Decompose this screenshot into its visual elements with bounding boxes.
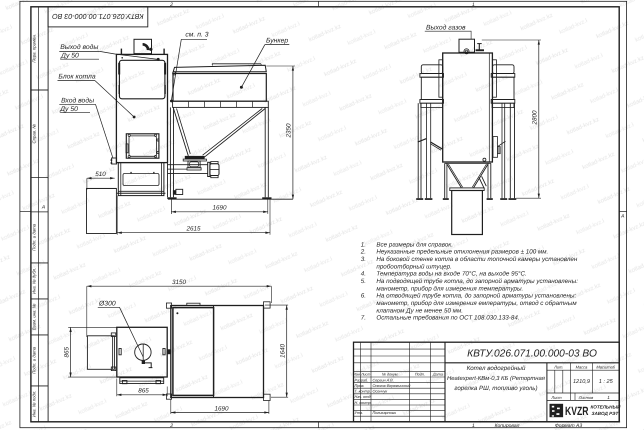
svg-text:манометр, прибор для измерения: манометр, прибор для измерения емператур…: [376, 300, 577, 307]
svg-text:А: А: [620, 214, 625, 220]
svg-text:КОТЕЛЬНЫЙ: КОТЕЛЬНЫЙ: [591, 404, 622, 410]
svg-text:1: 1: [607, 395, 610, 400]
svg-text:манометр, прибор для измерения: манометр, прибор для измерения температу…: [376, 285, 523, 292]
svg-text:865: 865: [63, 347, 70, 358]
svg-text:Бункер: Бункер: [266, 38, 288, 45]
svg-text:Утв.: Утв.: [355, 411, 364, 415]
svg-text:2615: 2615: [185, 226, 201, 233]
svg-text:Ду 50: Ду 50: [59, 106, 78, 113]
svg-text:Дата: Дата: [432, 373, 443, 377]
svg-text:5.: 5.: [361, 278, 366, 285]
svg-text:Осенчук: Осенчук: [373, 390, 388, 394]
svg-text:3150: 3150: [172, 279, 187, 286]
svg-text:1690: 1690: [214, 405, 229, 412]
svg-text:Подп.: Подп.: [415, 373, 425, 377]
svg-text:На отводящей трубе котла, до з: На отводящей трубе котла, до запорной ар…: [376, 293, 576, 300]
svg-text:Котел водогрейный: Котел водогрейный: [467, 365, 526, 372]
svg-text:Подп. и дата: Подп. и дата: [31, 223, 36, 251]
svg-text:510: 510: [95, 171, 106, 178]
svg-text:Сергин А.В.: Сергин А.В.: [373, 378, 394, 382]
svg-text:1690: 1690: [213, 205, 228, 212]
svg-text:2: 2: [169, 2, 173, 8]
svg-text:На подводящей трубе котла, до: На подводящей трубе котла, до запорной а…: [376, 278, 578, 285]
svg-text:Неуказанные предельные отклоне: Неуказанные предельные отклонения размер…: [376, 249, 548, 256]
svg-text:Блок котла: Блок котла: [58, 74, 95, 81]
svg-text:Инв. № дубл.: Инв. № дубл.: [31, 268, 36, 294]
svg-text:Выход газов: Выход газов: [426, 24, 466, 31]
svg-text:Онегов-Вережинский: Онегов-Вережинский: [373, 384, 412, 388]
svg-text:см. п. 3: см. п. 3: [185, 32, 208, 39]
svg-text:Остальные требования по ОСТ 10: Остальные требования по ОСТ 108.030.133-…: [376, 315, 519, 322]
svg-text:Лит.: Лит.: [553, 364, 563, 369]
svg-text:КВТУ.026.071.00.000-03 ВО: КВТУ.026.071.00.000-03 ВО: [467, 349, 597, 360]
svg-text:Все размеры для справок.: Все размеры для справок.: [376, 241, 453, 248]
svg-text:Взам. инв. №: Взам. инв. №: [31, 303, 36, 330]
svg-text:1.: 1.: [361, 241, 366, 248]
svg-text:Разраб.: Разраб.: [355, 378, 369, 382]
svg-text:Подп. и дата: Подп. и дата: [31, 346, 36, 374]
svg-text:КВТУ.026.071.00.000-03 ВО: КВТУ.026.071.00.000-03 ВО: [52, 12, 144, 21]
svg-text:Heatexpert-КВм-0,3 КБ (Ретортн: Heatexpert-КВм-0,3 КБ (Ретортная: [447, 375, 546, 382]
svg-text:Лист: Лист: [550, 395, 562, 400]
svg-text:Т. контр.: Т. контр.: [355, 390, 371, 394]
svg-text:1: 1: [472, 423, 475, 429]
svg-text:1210,9: 1210,9: [573, 379, 590, 385]
svg-text:Пров.: Пров.: [355, 384, 365, 388]
svg-text:4.: 4.: [361, 271, 366, 278]
svg-text:клапаном Ду не менее 50 мм.: клапаном Ду не менее 50 мм.: [376, 307, 463, 314]
svg-text:2.: 2.: [360, 249, 366, 256]
svg-text:KVZR: KVZR: [565, 404, 589, 418]
svg-text:Лист: Лист: [360, 373, 370, 377]
svg-text:3.: 3.: [361, 256, 366, 263]
svg-text:Перв. примен.: Перв. примен.: [31, 34, 36, 63]
svg-text:Масса: Масса: [576, 364, 589, 369]
svg-text:Листов: Листов: [578, 395, 594, 400]
svg-text:Вход воды: Вход воды: [61, 97, 94, 104]
svg-text:Нач. отд: Нач. отд: [355, 395, 371, 399]
svg-text:Инв. № подл.: Инв. № подл.: [31, 391, 36, 418]
svg-text:1640: 1640: [280, 344, 287, 359]
svg-text:Н. контр.: Н. контр.: [355, 401, 372, 405]
svg-text:№ докум.: № докум.: [382, 373, 399, 377]
svg-text:Температура воды на входе 70°С: Температура воды на входе 70°С, на выход…: [376, 271, 526, 278]
svg-text:2350: 2350: [286, 123, 293, 139]
svg-text:ЗАВОД РЭТ: ЗАВОД РЭТ: [592, 411, 620, 416]
svg-text:Справ. №: Справ. №: [31, 124, 36, 144]
svg-text:горелка РШ, топливо уголь): горелка РШ, топливо уголь): [454, 385, 537, 392]
svg-text:Изм.: Изм.: [353, 373, 361, 377]
svg-text:6.: 6.: [361, 293, 366, 300]
svg-text:А: А: [41, 205, 46, 211]
svg-text:1 : 25: 1 : 25: [599, 379, 614, 385]
svg-text:865: 865: [138, 388, 149, 395]
svg-text:Ø300: Ø300: [98, 301, 116, 308]
svg-text:Копировал: Копировал: [495, 423, 520, 429]
svg-text:1: 1: [472, 2, 475, 8]
svg-text:пробоотборный штуцер.: пробоотборный штуцер.: [376, 263, 451, 270]
svg-text:На боковой стенке котла в обла: На боковой стенке котла в области топочн…: [376, 256, 577, 263]
svg-text:Формат А3: Формат А3: [555, 423, 583, 429]
svg-text:7.: 7.: [361, 315, 366, 322]
svg-text:2: 2: [169, 423, 173, 429]
svg-text:Ду 50: Ду 50: [60, 52, 79, 59]
svg-text:2800: 2800: [532, 110, 539, 126]
svg-text:Выход воды: Выход воды: [60, 44, 98, 51]
svg-text:Поликарпова: Поликарпова: [373, 411, 396, 415]
svg-text:Масштаб: Масштаб: [596, 364, 615, 369]
